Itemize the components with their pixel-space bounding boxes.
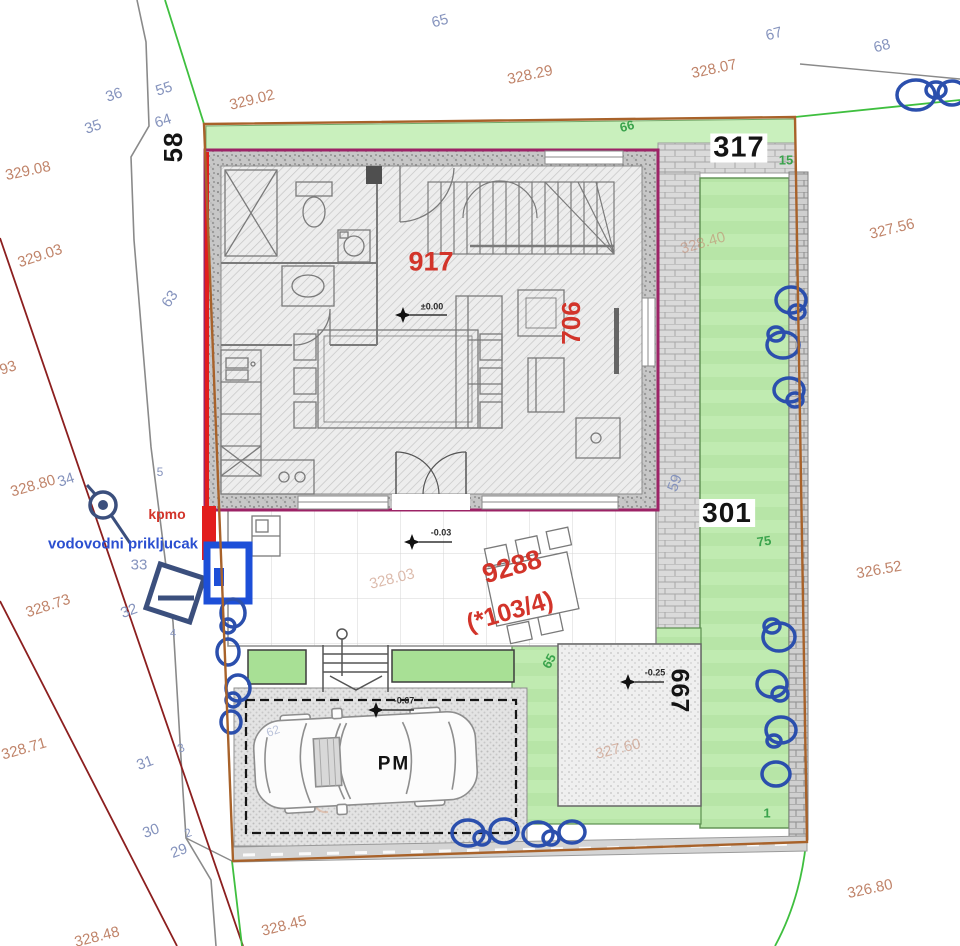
survey-point-5: 5: [157, 466, 164, 478]
parking-space-label: PM: [378, 755, 411, 774]
survey-point-4: 4: [170, 629, 176, 640]
chimney: [366, 166, 382, 184]
water-connection-icon: [207, 545, 249, 601]
parcel-number-667: 667: [667, 669, 692, 714]
car-icon: [252, 701, 479, 818]
level-value-yard: -0.25: [645, 669, 666, 678]
site-plan: 329.02 328.29 328.07 329.08 329.03 93 32…: [0, 0, 960, 946]
level-value-ground: ±0.00: [421, 303, 443, 312]
building: [205, 150, 658, 510]
parcel-number-301: 301: [699, 499, 755, 527]
benchmark-icon: [87, 485, 130, 543]
parcel-number-317: 317: [710, 134, 767, 163]
building-area-917: 917: [408, 249, 453, 276]
survey-point-67: 67: [764, 25, 784, 44]
kpmo-label: kpmo: [148, 507, 185, 521]
survey-point-68: 68: [872, 37, 892, 56]
green-mark-66: 66: [618, 118, 635, 134]
level-value-terrace: -0.03: [431, 529, 452, 538]
green-mark-15: 15: [779, 154, 793, 167]
building-side-706: 706: [558, 301, 584, 344]
site-plan-drawing: [0, 0, 960, 946]
water-connection-label: vodovodni prikljucak: [48, 537, 198, 552]
parcel-number-58: 58: [160, 132, 186, 163]
junction-box-icon: [146, 564, 204, 622]
green-mark-1: 1: [763, 807, 770, 820]
survey-point-65: 65: [430, 12, 450, 31]
survey-point-33: 33: [131, 558, 148, 573]
green-mark-75: 75: [756, 534, 772, 549]
level-value-parking: -0.67: [394, 697, 415, 706]
terrace-bench: [252, 516, 280, 556]
